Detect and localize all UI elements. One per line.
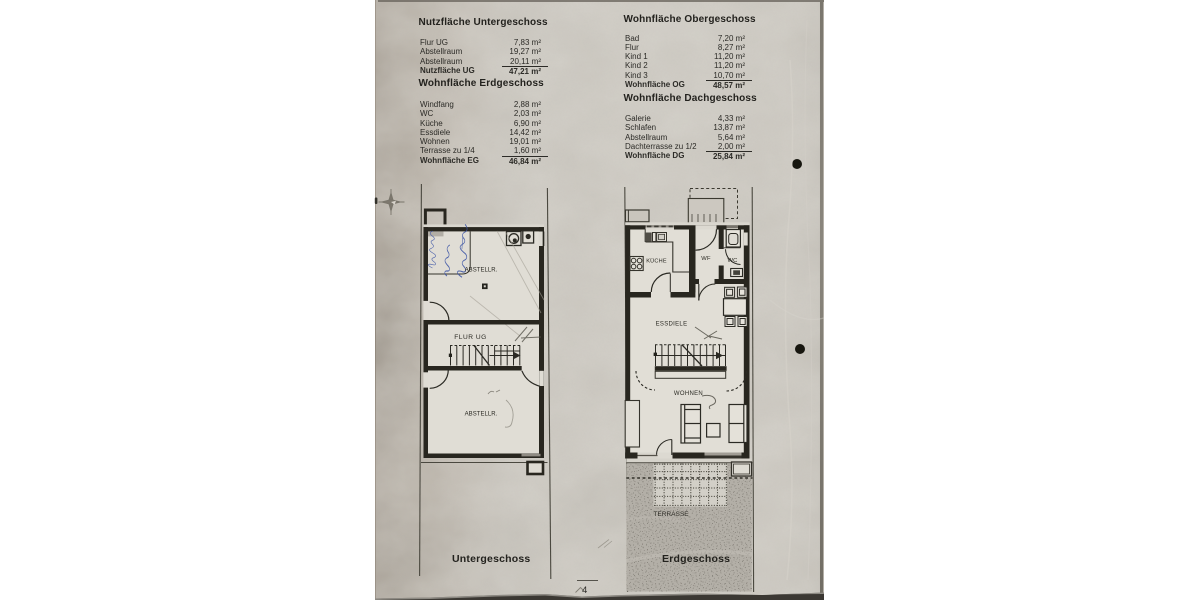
svg-text:KÜCHE: KÜCHE [646,258,667,265]
svg-text:FLUR UG: FLUR UG [454,334,486,341]
svg-text:ESSDIELE: ESSDIELE [656,322,688,328]
svg-text:TERRASSE: TERRASSE [654,511,689,518]
svg-text:ABSTELLR.: ABSTELLR. [465,412,498,418]
svg-text:WOHNEN: WOHNEN [674,391,703,397]
svg-text:WC: WC [727,258,737,264]
svg-text:ABSTELLR.: ABSTELLR. [465,268,498,274]
svg-text:WF: WF [701,256,711,262]
